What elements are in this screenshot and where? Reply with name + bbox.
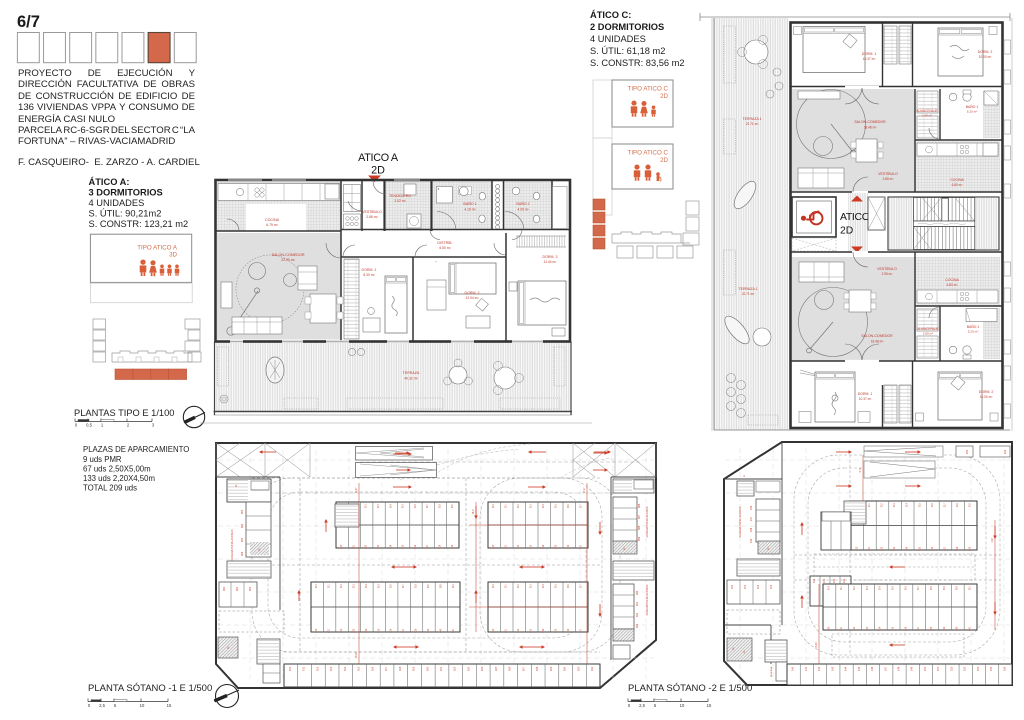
svg-text:4: 4 xyxy=(767,547,769,551)
svg-text:3D: 3D xyxy=(169,252,177,259)
svg-text:036: 036 xyxy=(905,626,907,631)
svg-text:4: 4 xyxy=(623,547,625,551)
svg-text:138: 138 xyxy=(749,527,753,532)
svg-text:153: 153 xyxy=(769,584,773,589)
svg-text:4 UNIDADES: 4 UNIDADES xyxy=(89,198,145,208)
svg-text:155: 155 xyxy=(989,666,993,671)
svg-text:DORM. 1: DORM. 1 xyxy=(858,392,873,396)
svg-text:032: 032 xyxy=(590,666,594,671)
svg-text:S. ÚTIL: 61,18 m2: S. ÚTIL: 61,18 m2 xyxy=(590,46,665,56)
svg-text:16,5: 16,5 xyxy=(471,509,475,515)
svg-text:015: 015 xyxy=(403,504,405,509)
svg-text:024: 024 xyxy=(480,666,484,671)
svg-text:VESTÍBULO: VESTÍBULO xyxy=(877,267,897,271)
svg-text:027: 027 xyxy=(521,666,525,671)
svg-text:TOTAL 209 uds: TOTAL 209 uds xyxy=(83,484,137,493)
svg-text:DORM. 2: DORM. 2 xyxy=(978,50,993,54)
svg-text:15: 15 xyxy=(167,703,172,708)
svg-text:010: 010 xyxy=(288,666,292,671)
svg-text:014: 014 xyxy=(343,666,347,671)
svg-text:2D: 2D xyxy=(660,93,668,100)
svg-text:6.75 m²: 6.75 m² xyxy=(266,223,278,227)
svg-text:086: 086 xyxy=(637,503,641,508)
svg-text:131: 131 xyxy=(822,578,826,583)
svg-text:019: 019 xyxy=(970,503,972,508)
svg-text:019: 019 xyxy=(412,666,416,671)
svg-text:SALON-COMEDOR: SALON-COMEDOR xyxy=(272,253,305,257)
svg-text:ÁTICO A:: ÁTICO A: xyxy=(89,177,130,187)
svg-text:COCINA: COCINA xyxy=(945,278,959,282)
svg-text:6.80 m²: 6.80 m² xyxy=(947,283,958,287)
svg-text:090: 090 xyxy=(635,590,639,595)
svg-text:011: 011 xyxy=(302,666,306,671)
svg-text:0: 0 xyxy=(88,703,91,708)
svg-text:031: 031 xyxy=(576,666,580,671)
svg-text:TENDEDERO: TENDEDERO xyxy=(389,194,411,198)
svg-text:COCINA: COCINA xyxy=(950,178,964,182)
svg-text:025: 025 xyxy=(494,666,498,671)
svg-text:136: 136 xyxy=(749,505,753,510)
svg-text:2.02 m²: 2.02 m² xyxy=(394,199,406,203)
svg-text:137: 137 xyxy=(749,516,753,521)
svg-text:018: 018 xyxy=(416,584,418,589)
svg-text:PLANTAS TIPO E 1/100: PLANTAS TIPO E 1/100 xyxy=(74,408,174,418)
svg-text:67 uds 2,50X5,00m: 67 uds 2,50X5,00m xyxy=(83,465,151,474)
svg-text:COCINA: COCINA xyxy=(265,218,280,222)
svg-text:012: 012 xyxy=(341,584,343,589)
svg-text:149: 149 xyxy=(910,666,914,671)
svg-text:140: 140 xyxy=(791,666,795,671)
svg-text:2,5: 2,5 xyxy=(99,703,105,708)
svg-text:061: 061 xyxy=(235,586,239,591)
svg-text:PLANTA SÓTANO -1 E 1/500: PLANTA SÓTANO -1 E 1/500 xyxy=(88,683,212,694)
svg-text:152: 152 xyxy=(756,584,760,589)
svg-text:145: 145 xyxy=(857,666,861,671)
svg-text:152: 152 xyxy=(949,666,953,671)
svg-text:DORM. 1: DORM. 1 xyxy=(862,52,877,56)
svg-text:3: 3 xyxy=(152,423,155,428)
svg-text:2D: 2D xyxy=(840,226,853,237)
svg-text:DORM. 1: DORM. 1 xyxy=(362,268,377,272)
svg-text:BAÑO 1: BAÑO 1 xyxy=(966,104,979,109)
svg-text:6,47: 6,47 xyxy=(354,487,358,493)
svg-text:TERRAZA 1: TERRAZA 1 xyxy=(738,287,757,291)
svg-text:016: 016 xyxy=(415,504,417,509)
svg-text:TIPO ATICO A: TIPO ATICO A xyxy=(137,245,178,252)
svg-text:010: 010 xyxy=(828,586,830,591)
svg-text:4: 4 xyxy=(235,484,237,488)
svg-text:5.23 m²: 5.23 m² xyxy=(968,330,979,334)
svg-text:062: 062 xyxy=(248,586,252,591)
svg-text:2.95 m²: 2.95 m² xyxy=(882,272,893,276)
svg-text:SALON-COMEDOR: SALON-COMEDOR xyxy=(854,120,886,124)
svg-text:10.00 m²: 10.00 m² xyxy=(980,395,993,399)
svg-text:4: 4 xyxy=(258,548,260,552)
svg-text:12.04 m²: 12.04 m² xyxy=(465,296,479,300)
svg-text:10.00 m²: 10.00 m² xyxy=(979,55,992,59)
svg-text:VESTÍBULO: VESTÍBULO xyxy=(362,210,382,214)
svg-text:036: 036 xyxy=(415,544,417,549)
svg-text:11.44 m²: 11.44 m² xyxy=(544,260,558,264)
svg-text:T: T xyxy=(435,260,437,264)
svg-text:2.85 m²: 2.85 m² xyxy=(883,177,894,181)
svg-text:BAÑO 2: BAÑO 2 xyxy=(516,201,529,206)
svg-text:ATICO A: ATICO A xyxy=(358,152,399,164)
svg-text:017: 017 xyxy=(384,666,388,671)
svg-text:1,97: 1,97 xyxy=(990,537,994,543)
svg-text:015: 015 xyxy=(357,666,361,671)
svg-text:VESTÍBULO: VESTÍBULO xyxy=(878,172,898,176)
svg-text:026: 026 xyxy=(508,666,512,671)
svg-text:030: 030 xyxy=(341,544,343,549)
svg-text:4: 4 xyxy=(743,474,745,478)
svg-text:15: 15 xyxy=(707,703,712,708)
svg-text:139: 139 xyxy=(749,538,753,543)
svg-text:8,50: 8,50 xyxy=(354,652,358,658)
svg-text:019: 019 xyxy=(944,586,946,591)
svg-text:039: 039 xyxy=(970,546,972,551)
svg-text:2,5: 2,5 xyxy=(639,703,645,708)
svg-text:0: 0 xyxy=(75,423,78,428)
svg-text:065: 065 xyxy=(240,537,244,542)
svg-text:041: 041 xyxy=(453,628,455,633)
svg-text:035: 035 xyxy=(403,544,405,549)
svg-text:22.71 m²: 22.71 m² xyxy=(746,122,759,126)
svg-text:089: 089 xyxy=(637,536,641,541)
svg-text:9 uds PMR: 9 uds PMR xyxy=(83,455,122,464)
svg-text:PLAZAS DE APARCAMIENTO: PLAZAS DE APARCAMIENTO xyxy=(83,445,189,454)
svg-text:014: 014 xyxy=(907,503,909,508)
svg-text:2: 2 xyxy=(127,423,130,428)
svg-text:092: 092 xyxy=(635,612,639,617)
svg-text:020: 020 xyxy=(425,666,429,671)
svg-text:DORM. 2: DORM. 2 xyxy=(979,390,994,394)
svg-text:1: 1 xyxy=(101,423,104,428)
svg-text:141: 141 xyxy=(804,666,808,671)
svg-text:088: 088 xyxy=(637,525,641,530)
svg-text:144: 144 xyxy=(844,666,848,671)
svg-text:013: 013 xyxy=(867,586,869,591)
svg-text:030: 030 xyxy=(563,666,567,671)
svg-text:021: 021 xyxy=(439,666,443,671)
svg-text:142: 142 xyxy=(817,666,821,671)
svg-text:TIPO ATICO C: TIPO ATICO C xyxy=(628,150,669,157)
svg-text:091: 091 xyxy=(635,601,639,606)
svg-text:013: 013 xyxy=(329,666,333,671)
svg-text:2D: 2D xyxy=(660,157,668,164)
svg-text:132: 132 xyxy=(832,578,836,583)
svg-text:038: 038 xyxy=(416,628,418,633)
svg-text:3,71: 3,71 xyxy=(858,467,862,473)
svg-text:064: 064 xyxy=(240,523,244,528)
svg-text:S. CONSTR: 123,21 m2: S. CONSTR: 123,21 m2 xyxy=(89,219,189,229)
svg-text:206: 206 xyxy=(1003,449,1007,454)
svg-text:ALMACENAJE: ALMACENAJE xyxy=(917,327,938,331)
svg-text:BAÑO 1: BAÑO 1 xyxy=(967,324,980,329)
svg-text:016: 016 xyxy=(932,503,934,508)
svg-text:5: 5 xyxy=(114,703,117,708)
svg-text:205: 205 xyxy=(965,449,969,454)
svg-text:2.86 m²: 2.86 m² xyxy=(366,215,378,219)
svg-text:023: 023 xyxy=(466,666,470,671)
svg-text:8.30 m²: 8.30 m² xyxy=(363,273,375,277)
svg-text:S. ÚTIL: 90,21m2: S. ÚTIL: 90,21m2 xyxy=(89,209,162,219)
svg-text:10: 10 xyxy=(140,703,145,708)
svg-text:036: 036 xyxy=(932,546,934,551)
svg-text:10: 10 xyxy=(680,703,685,708)
svg-text:PLANTA SÓTANO -2 E 1/500: PLANTA SÓTANO -2 E 1/500 xyxy=(628,683,752,694)
svg-text:039: 039 xyxy=(944,626,946,631)
svg-text:22.00 m²: 22.00 m² xyxy=(281,258,295,262)
svg-text:146: 146 xyxy=(870,666,874,671)
svg-text:133: 133 xyxy=(842,578,846,583)
svg-text:093: 093 xyxy=(635,623,639,628)
svg-text:SALON-COMEDOR: SALON-COMEDOR xyxy=(861,334,893,338)
svg-text:18.48 m²: 18.48 m² xyxy=(864,126,877,130)
svg-text:018: 018 xyxy=(398,666,402,671)
svg-text:066: 066 xyxy=(240,551,244,556)
svg-text:033: 033 xyxy=(867,626,869,631)
svg-text:DORM. 3: DORM. 3 xyxy=(543,255,558,259)
svg-text:156: 156 xyxy=(1002,666,1006,671)
svg-text:5: 5 xyxy=(654,703,657,708)
svg-text:S. CONSTR: 83,56 m2: S. CONSTR: 83,56 m2 xyxy=(590,58,685,68)
svg-text:133 uds 2,20X4,50m: 133 uds 2,20X4,50m xyxy=(83,474,155,483)
svg-text:060: 060 xyxy=(222,586,226,591)
svg-text:RESERVA INSTALACIONES: RESERVA INSTALACIONES xyxy=(231,529,234,560)
svg-text:10.37 m²: 10.37 m² xyxy=(859,397,872,401)
svg-text:151: 151 xyxy=(743,584,747,589)
svg-text:147: 147 xyxy=(883,666,887,671)
svg-text:021: 021 xyxy=(453,584,455,589)
svg-text:BAÑO 1: BAÑO 1 xyxy=(463,201,476,206)
svg-text:8,43: 8,43 xyxy=(814,642,818,648)
svg-text:DISTRIB.: DISTRIB. xyxy=(437,241,452,245)
svg-text:TERRAZA: TERRAZA xyxy=(403,371,420,375)
svg-text:22.71 m²: 22.71 m² xyxy=(742,292,755,296)
svg-text:6/7: 6/7 xyxy=(17,13,40,31)
svg-text:031: 031 xyxy=(353,544,355,549)
svg-text:015: 015 xyxy=(378,584,380,589)
svg-text:4.09 m²: 4.09 m² xyxy=(517,208,529,212)
svg-text:034: 034 xyxy=(907,546,909,551)
svg-text:18.48 m²: 18.48 m² xyxy=(871,340,884,344)
svg-text:0,5: 0,5 xyxy=(86,423,92,428)
svg-text:4: 4 xyxy=(743,650,745,654)
svg-text:022: 022 xyxy=(453,666,457,671)
svg-text:TIPO ATICO C: TIPO ATICO C xyxy=(628,86,669,93)
svg-text:10.37 m²: 10.37 m² xyxy=(863,57,876,61)
svg-text:4: 4 xyxy=(227,646,229,650)
svg-text:8,17: 8,17 xyxy=(582,487,586,493)
svg-text:063: 063 xyxy=(240,509,244,514)
svg-text:2 DORMITORIOS: 2 DORMITORIOS xyxy=(590,22,664,32)
svg-text:012: 012 xyxy=(315,666,319,671)
svg-text:3 DORMITORIOS: 3 DORMITORIOS xyxy=(89,188,163,198)
svg-text:5.23 m²: 5.23 m² xyxy=(967,110,978,114)
svg-text:016: 016 xyxy=(905,586,907,591)
svg-text:2D: 2D xyxy=(371,165,385,177)
svg-text:035: 035 xyxy=(378,628,380,633)
svg-text:143: 143 xyxy=(830,666,834,671)
svg-text:029: 029 xyxy=(549,666,553,671)
svg-text:028: 028 xyxy=(535,666,539,671)
svg-text:031: 031 xyxy=(869,546,871,551)
svg-text:151: 151 xyxy=(936,666,940,671)
svg-text:6.80 m²: 6.80 m² xyxy=(952,183,963,187)
svg-text:TERRAZA 1: TERRAZA 1 xyxy=(742,117,761,121)
svg-text:032: 032 xyxy=(341,628,343,633)
svg-text:ÁTICO C:: ÁTICO C: xyxy=(590,10,631,20)
svg-text:RESERVA INSTALACIONES: RESERVA INSTALACIONES xyxy=(739,506,742,537)
svg-text:RESERVA: RESERVA xyxy=(770,666,773,677)
svg-text:4: 4 xyxy=(732,647,734,651)
svg-text:RESERVA INSTALACIONES: RESERVA INSTALACIONES xyxy=(646,506,649,537)
svg-text:030: 030 xyxy=(828,626,830,631)
svg-text:148: 148 xyxy=(897,666,901,671)
svg-text:40.32 m²: 40.32 m² xyxy=(404,377,418,381)
svg-text:0: 0 xyxy=(628,703,631,708)
svg-text:RESERVA INSTALACIONES: RESERVA INSTALACIONES xyxy=(646,584,649,615)
svg-text:6.50 m²: 6.50 m² xyxy=(439,246,451,250)
svg-text:016: 016 xyxy=(370,666,374,671)
svg-text:ALMACENAJE: ALMACENAJE xyxy=(916,109,937,113)
svg-text:4.19 m²: 4.19 m² xyxy=(464,208,476,212)
svg-text:153: 153 xyxy=(963,666,967,671)
svg-text:150: 150 xyxy=(923,666,927,671)
svg-text:4 UNIDADES: 4 UNIDADES xyxy=(590,34,646,44)
svg-text:150: 150 xyxy=(730,584,734,589)
svg-text:2.06 m²: 2.06 m² xyxy=(923,332,933,336)
svg-text:2.06 m²: 2.06 m² xyxy=(922,114,932,118)
svg-text:087: 087 xyxy=(637,514,641,519)
svg-text:DORM. 2: DORM. 2 xyxy=(465,291,480,295)
svg-text:154: 154 xyxy=(976,666,980,671)
